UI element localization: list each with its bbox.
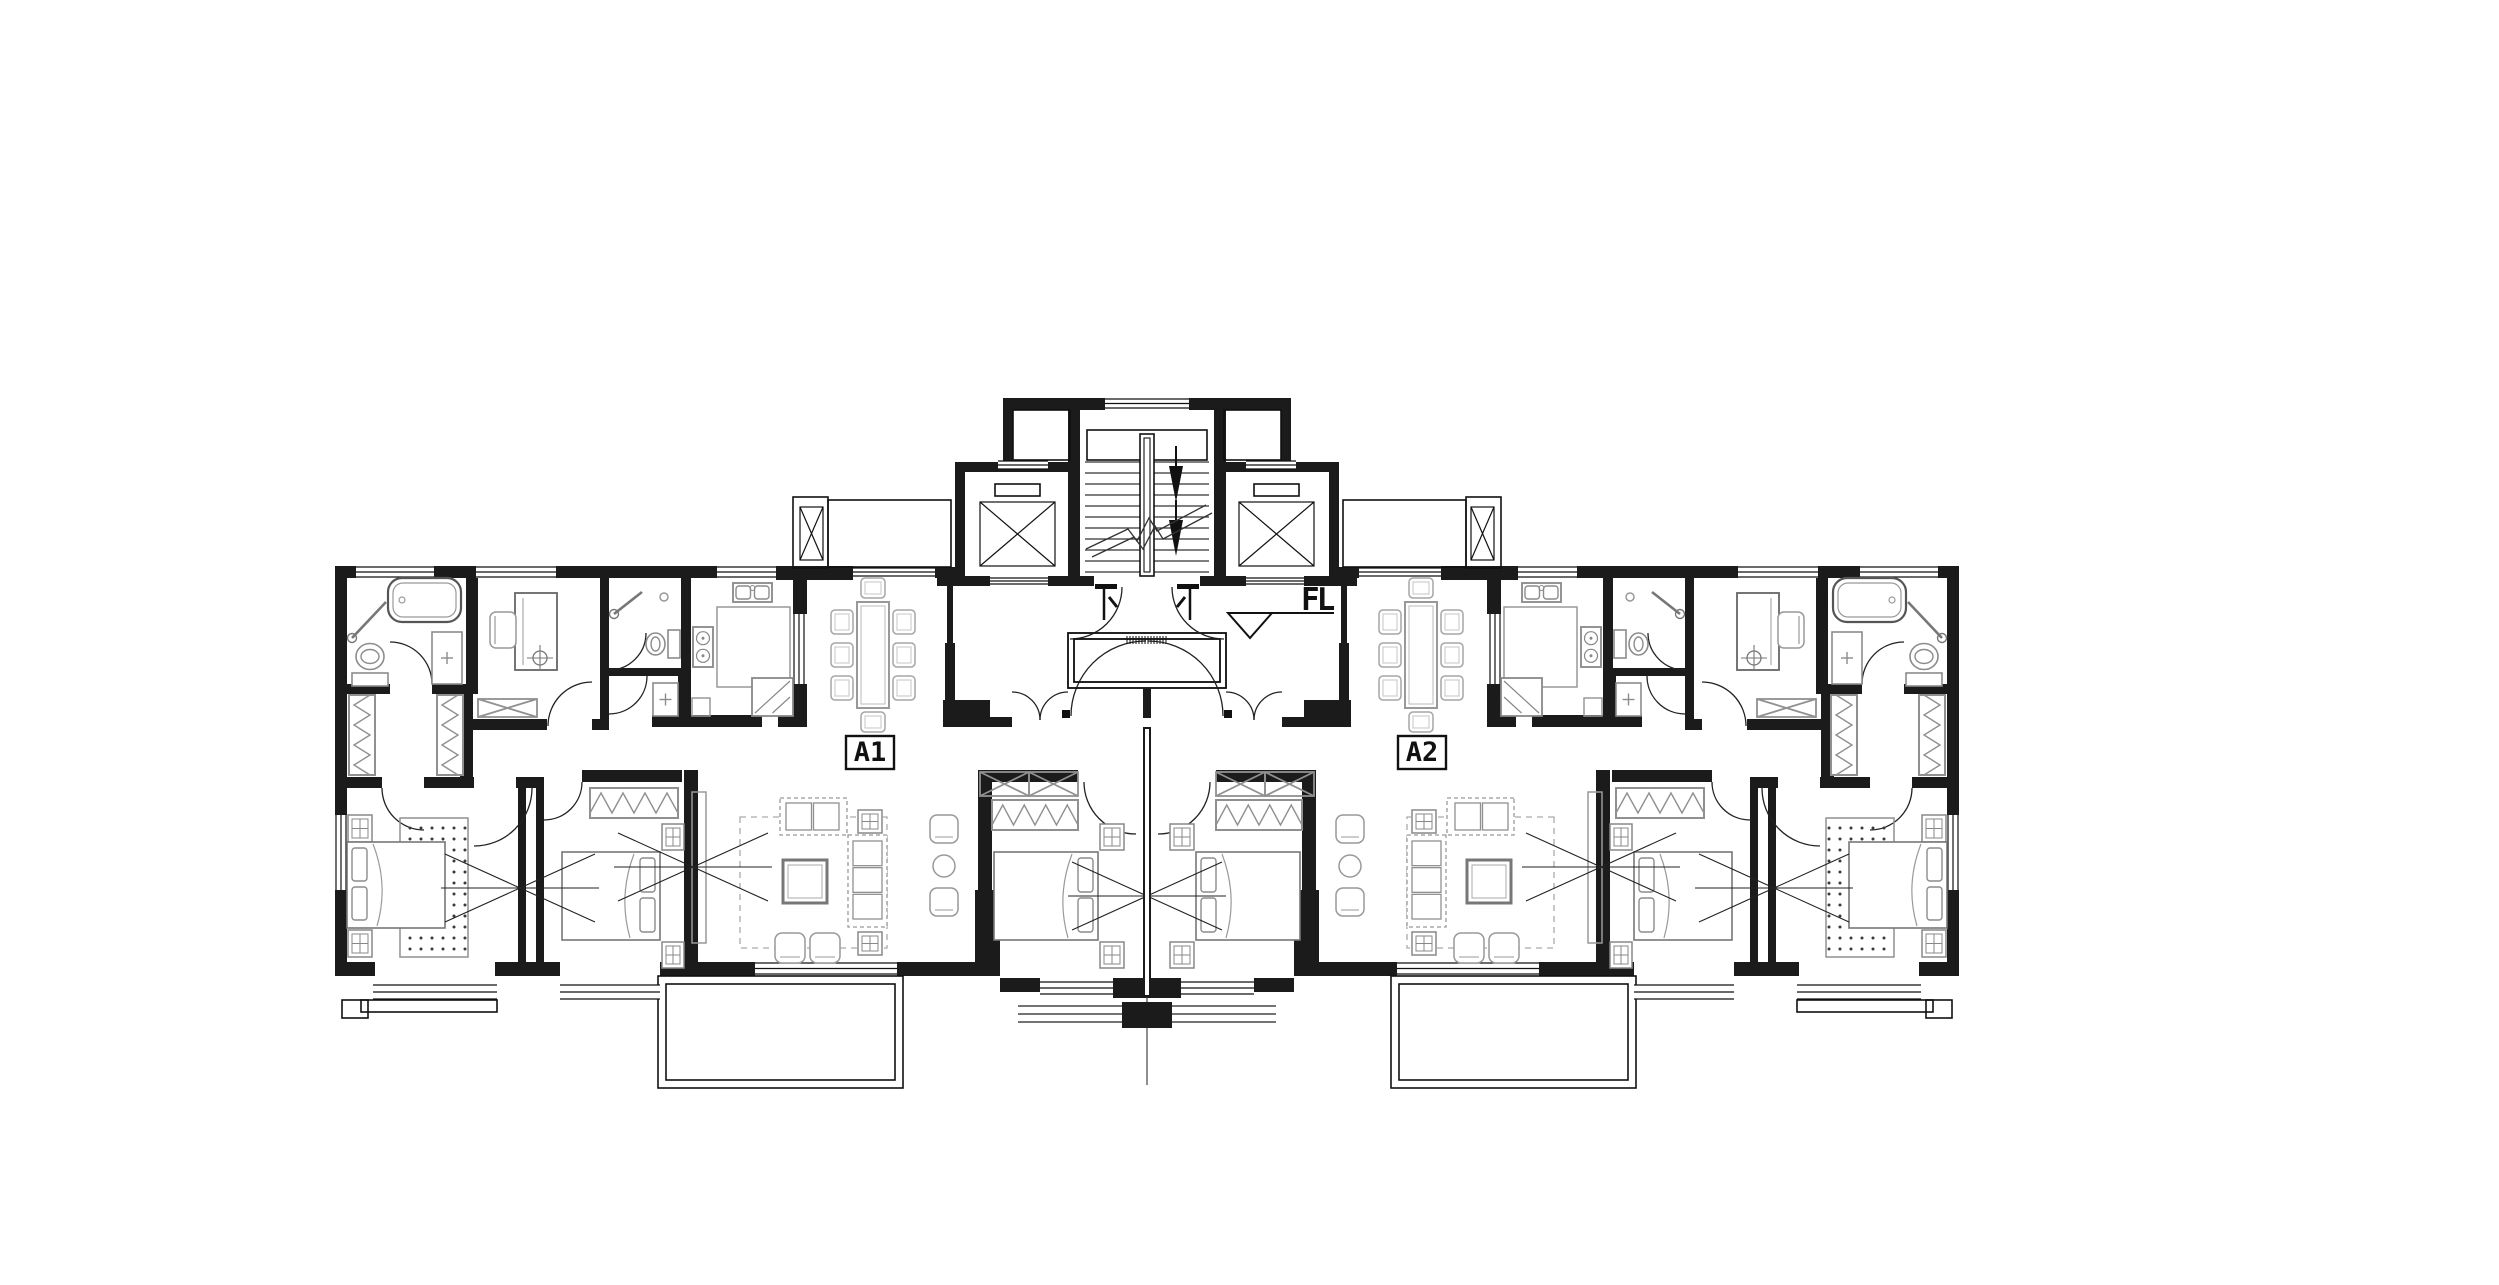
- stool: [1336, 815, 1364, 843]
- bowtie-annotation: [693, 833, 768, 867]
- wall: [1734, 962, 1799, 976]
- bowtie-annotation: [693, 867, 768, 901]
- shower-arm: [614, 592, 642, 614]
- wall: [1820, 777, 1870, 788]
- wall: [1613, 566, 1685, 578]
- entry-stub-wall: [1143, 688, 1151, 718]
- wall-outline: [1797, 1000, 1933, 1012]
- counter: [692, 698, 710, 716]
- wall: [1339, 643, 1349, 727]
- wall: [1068, 576, 1094, 586]
- stove: [693, 627, 713, 667]
- unit-a2-half-mirrored: [1068, 398, 1959, 1088]
- stool: [930, 815, 958, 843]
- door-stop: [1224, 710, 1232, 718]
- wall: [1003, 398, 1013, 470]
- wall-outline: [1068, 633, 1226, 688]
- counter: [1504, 607, 1577, 687]
- wall: [518, 782, 526, 962]
- stool: [1336, 888, 1364, 916]
- wall: [947, 586, 953, 643]
- wall: [1612, 770, 1712, 782]
- wall: [1818, 566, 1860, 578]
- wall: [1487, 566, 1501, 614]
- wall: [600, 578, 609, 730]
- wall: [1828, 684, 1862, 694]
- wall: [955, 462, 965, 576]
- stair-handrail-inner: [1144, 438, 1150, 572]
- door-swing-arc: [544, 782, 582, 820]
- sofa: [848, 835, 887, 927]
- door-swing-arc: [1702, 682, 1746, 726]
- wall: [1294, 962, 1397, 976]
- bowtie-annotation: [1526, 833, 1601, 867]
- wall: [592, 719, 600, 730]
- wall: [1816, 578, 1828, 694]
- wall: [1694, 719, 1702, 730]
- wall: [1080, 398, 1105, 410]
- wall: [681, 566, 717, 578]
- wall-outline: [1926, 1000, 1952, 1018]
- toilet-tank: [352, 673, 388, 686]
- level-marker-triangle: [1228, 613, 1272, 638]
- door-swing-arc: [1647, 676, 1685, 714]
- stool: [930, 888, 958, 916]
- door-swing-arc: [1862, 642, 1904, 684]
- bed: [562, 852, 660, 940]
- wall: [897, 962, 1000, 976]
- unit-a2-label: A2: [1406, 737, 1439, 768]
- toilet-bowl: [1910, 644, 1938, 670]
- fire-door-tick: [1177, 597, 1185, 607]
- wall: [681, 715, 762, 727]
- bed: [1634, 852, 1732, 940]
- toilet-tank: [668, 630, 680, 658]
- door-stop: [1062, 710, 1070, 718]
- wall: [1603, 578, 1613, 727]
- wall: [1912, 777, 1947, 788]
- stool: [1489, 933, 1519, 963]
- wall-outline: [1254, 484, 1299, 496]
- bed: [347, 842, 445, 928]
- wall-outline: [666, 984, 895, 1080]
- toilet-bowl: [356, 644, 384, 670]
- fire-door-head: [1095, 584, 1117, 589]
- wall: [955, 576, 990, 586]
- round-table: [933, 855, 955, 877]
- round-table: [660, 593, 668, 601]
- stove-burner-dot: [702, 637, 705, 640]
- wall: [1336, 567, 1359, 578]
- wall-outline: [995, 484, 1040, 496]
- wall: [1254, 978, 1294, 992]
- wall-outline: [1391, 976, 1636, 1088]
- wall: [1214, 398, 1291, 410]
- wall: [347, 777, 382, 788]
- coffee-table: [783, 860, 827, 903]
- wall: [1000, 978, 1040, 992]
- wall: [434, 566, 476, 578]
- door-swing-arc: [1254, 692, 1282, 720]
- wall: [793, 566, 807, 614]
- bowtie-annotation: [1526, 867, 1601, 901]
- wall: [1577, 566, 1613, 578]
- wall: [1613, 668, 1685, 676]
- wall: [978, 782, 992, 890]
- wall: [424, 777, 474, 788]
- wall-outline: [1224, 410, 1281, 460]
- door-swing-arc: [1070, 587, 1122, 639]
- round-table: [1339, 855, 1361, 877]
- door-swing-arc: [609, 633, 646, 670]
- fire-door-head: [1177, 584, 1199, 589]
- floor-level-label: FL: [1301, 582, 1335, 618]
- unit-a1-label: A1: [854, 737, 887, 768]
- wall: [1685, 566, 1738, 578]
- wall-outline: [342, 1000, 368, 1018]
- wall: [582, 770, 682, 782]
- wall: [495, 962, 560, 976]
- wall: [1003, 398, 1080, 410]
- wall: [609, 566, 681, 578]
- wall: [432, 684, 466, 694]
- wall-outline: [1399, 984, 1628, 1080]
- dining-table: [857, 602, 889, 708]
- wall: [1750, 782, 1758, 962]
- wall: [1189, 398, 1214, 410]
- toilet-tank: [1614, 630, 1626, 658]
- door-swing-arc: [1071, 641, 1146, 716]
- wall: [1329, 462, 1339, 576]
- wall: [1768, 782, 1776, 962]
- wall: [466, 719, 547, 730]
- sill-pier: [1122, 1002, 1172, 1028]
- wall-outline: [361, 1000, 497, 1012]
- stove: [1581, 627, 1601, 667]
- unit-a1-half: [335, 398, 1226, 1088]
- shower-arm: [1908, 602, 1942, 638]
- wall: [945, 643, 955, 727]
- sofa: [1407, 835, 1446, 927]
- wall: [1302, 782, 1316, 890]
- door-swing-arc: [1712, 782, 1750, 820]
- stool: [810, 933, 840, 963]
- wall: [1532, 715, 1613, 727]
- fire-door-tick: [1109, 597, 1117, 607]
- stove-burner-dot: [1590, 637, 1593, 640]
- wall: [609, 668, 681, 676]
- wall: [1747, 719, 1828, 730]
- wall-outline: [658, 976, 903, 1088]
- stool: [775, 933, 805, 963]
- floor-plan-canvas: A1 A2 FL: [0, 0, 2499, 1285]
- wall: [556, 566, 609, 578]
- chair: [490, 612, 516, 648]
- chair: [1778, 612, 1804, 648]
- stove-burner-dot: [702, 654, 705, 657]
- door-swing-arc: [1148, 641, 1223, 716]
- core-and-annotations: [441, 399, 1853, 1085]
- coffee-table: [1467, 860, 1511, 903]
- wall: [335, 962, 375, 976]
- stove-burner-dot: [1590, 654, 1593, 657]
- party-wall-cavity: [1145, 729, 1149, 995]
- door-swing-arc: [1648, 633, 1685, 670]
- wall: [681, 578, 691, 727]
- bed: [1849, 842, 1947, 928]
- door-swing-arc: [1172, 587, 1224, 639]
- counter: [1584, 698, 1602, 716]
- wall: [466, 578, 478, 694]
- wall: [935, 567, 958, 578]
- wall: [1281, 398, 1291, 470]
- toilet-tank: [1906, 673, 1942, 686]
- wall-outline: [1013, 410, 1070, 460]
- wall: [536, 782, 544, 962]
- door-swing-arc: [1012, 692, 1040, 720]
- dining-table: [1405, 602, 1437, 708]
- wall: [1341, 586, 1347, 643]
- door-swing-arc: [390, 642, 432, 684]
- wall: [1685, 578, 1694, 730]
- door-swing-arc: [609, 676, 647, 714]
- floor-plan-page: A1 A2 FL: [0, 0, 2499, 1285]
- shower-arm: [1652, 592, 1680, 614]
- counter: [717, 607, 790, 687]
- shower-arm: [352, 602, 386, 638]
- stool: [1454, 933, 1484, 963]
- wall-outline: [828, 500, 951, 567]
- wall: [1919, 962, 1959, 976]
- door-swing-arc: [548, 682, 592, 726]
- wall-outline: [1068, 633, 1226, 688]
- wall: [1200, 576, 1226, 586]
- wall-outline: [1343, 500, 1466, 567]
- round-table: [1626, 593, 1634, 601]
